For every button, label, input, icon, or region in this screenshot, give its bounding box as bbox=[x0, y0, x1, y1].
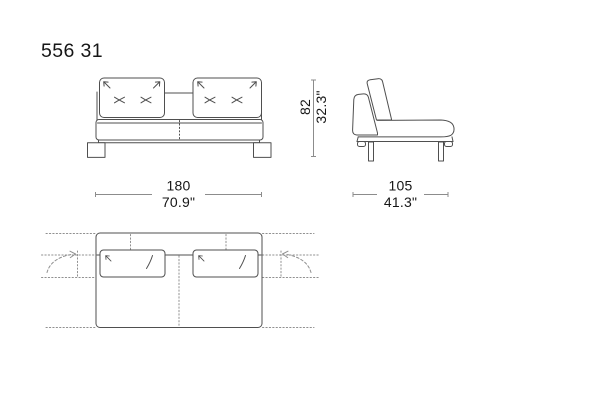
product-code: 556 31 bbox=[41, 40, 103, 62]
height-dimension: 82 32.3" bbox=[297, 80, 329, 157]
sofa-technical-drawing: 556 31 bbox=[0, 0, 600, 400]
front-view-drawing bbox=[88, 78, 272, 157]
depth-cm-label: 105 bbox=[389, 178, 413, 194]
foot-back bbox=[358, 142, 366, 147]
plan-cushion-right bbox=[193, 250, 258, 277]
technical-drawing-page: 556 31 bbox=[0, 0, 600, 400]
back-cushion-left bbox=[100, 78, 165, 118]
height-inches-label: 32.3" bbox=[313, 90, 329, 123]
plan-view-drawing bbox=[42, 233, 321, 328]
side-view-drawing bbox=[353, 79, 454, 161]
leg-left bbox=[88, 143, 106, 158]
leg-right bbox=[254, 143, 272, 158]
side-leg-back bbox=[369, 142, 374, 161]
back-cushion-right bbox=[193, 78, 262, 118]
width-dimension: 180 70.9" bbox=[96, 178, 262, 211]
plan-cushion-left bbox=[100, 250, 165, 277]
swing-arrow-left-icon bbox=[47, 251, 76, 272]
width-cm-label: 180 bbox=[167, 178, 191, 194]
depth-dimension: 105 41.3" bbox=[353, 178, 448, 211]
foot-front bbox=[445, 142, 453, 147]
base-right-edge bbox=[452, 137, 453, 142]
side-leg-front bbox=[439, 142, 444, 161]
swing-arrow-right-icon bbox=[283, 251, 312, 272]
depth-inches-label: 41.3" bbox=[384, 194, 417, 210]
plinth bbox=[99, 140, 260, 143]
base-left-edge bbox=[357, 137, 358, 142]
height-cm-label: 82 bbox=[297, 99, 313, 115]
width-inches-label: 70.9" bbox=[162, 194, 195, 210]
